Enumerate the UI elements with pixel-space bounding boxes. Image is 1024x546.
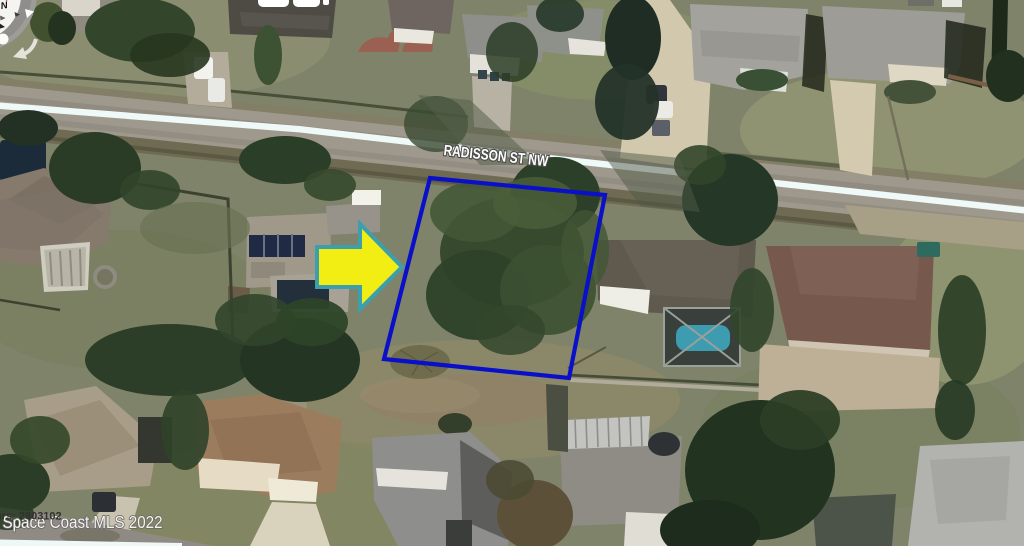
svg-text:urs: 2803102: urs: 2803102	[0, 511, 62, 523]
